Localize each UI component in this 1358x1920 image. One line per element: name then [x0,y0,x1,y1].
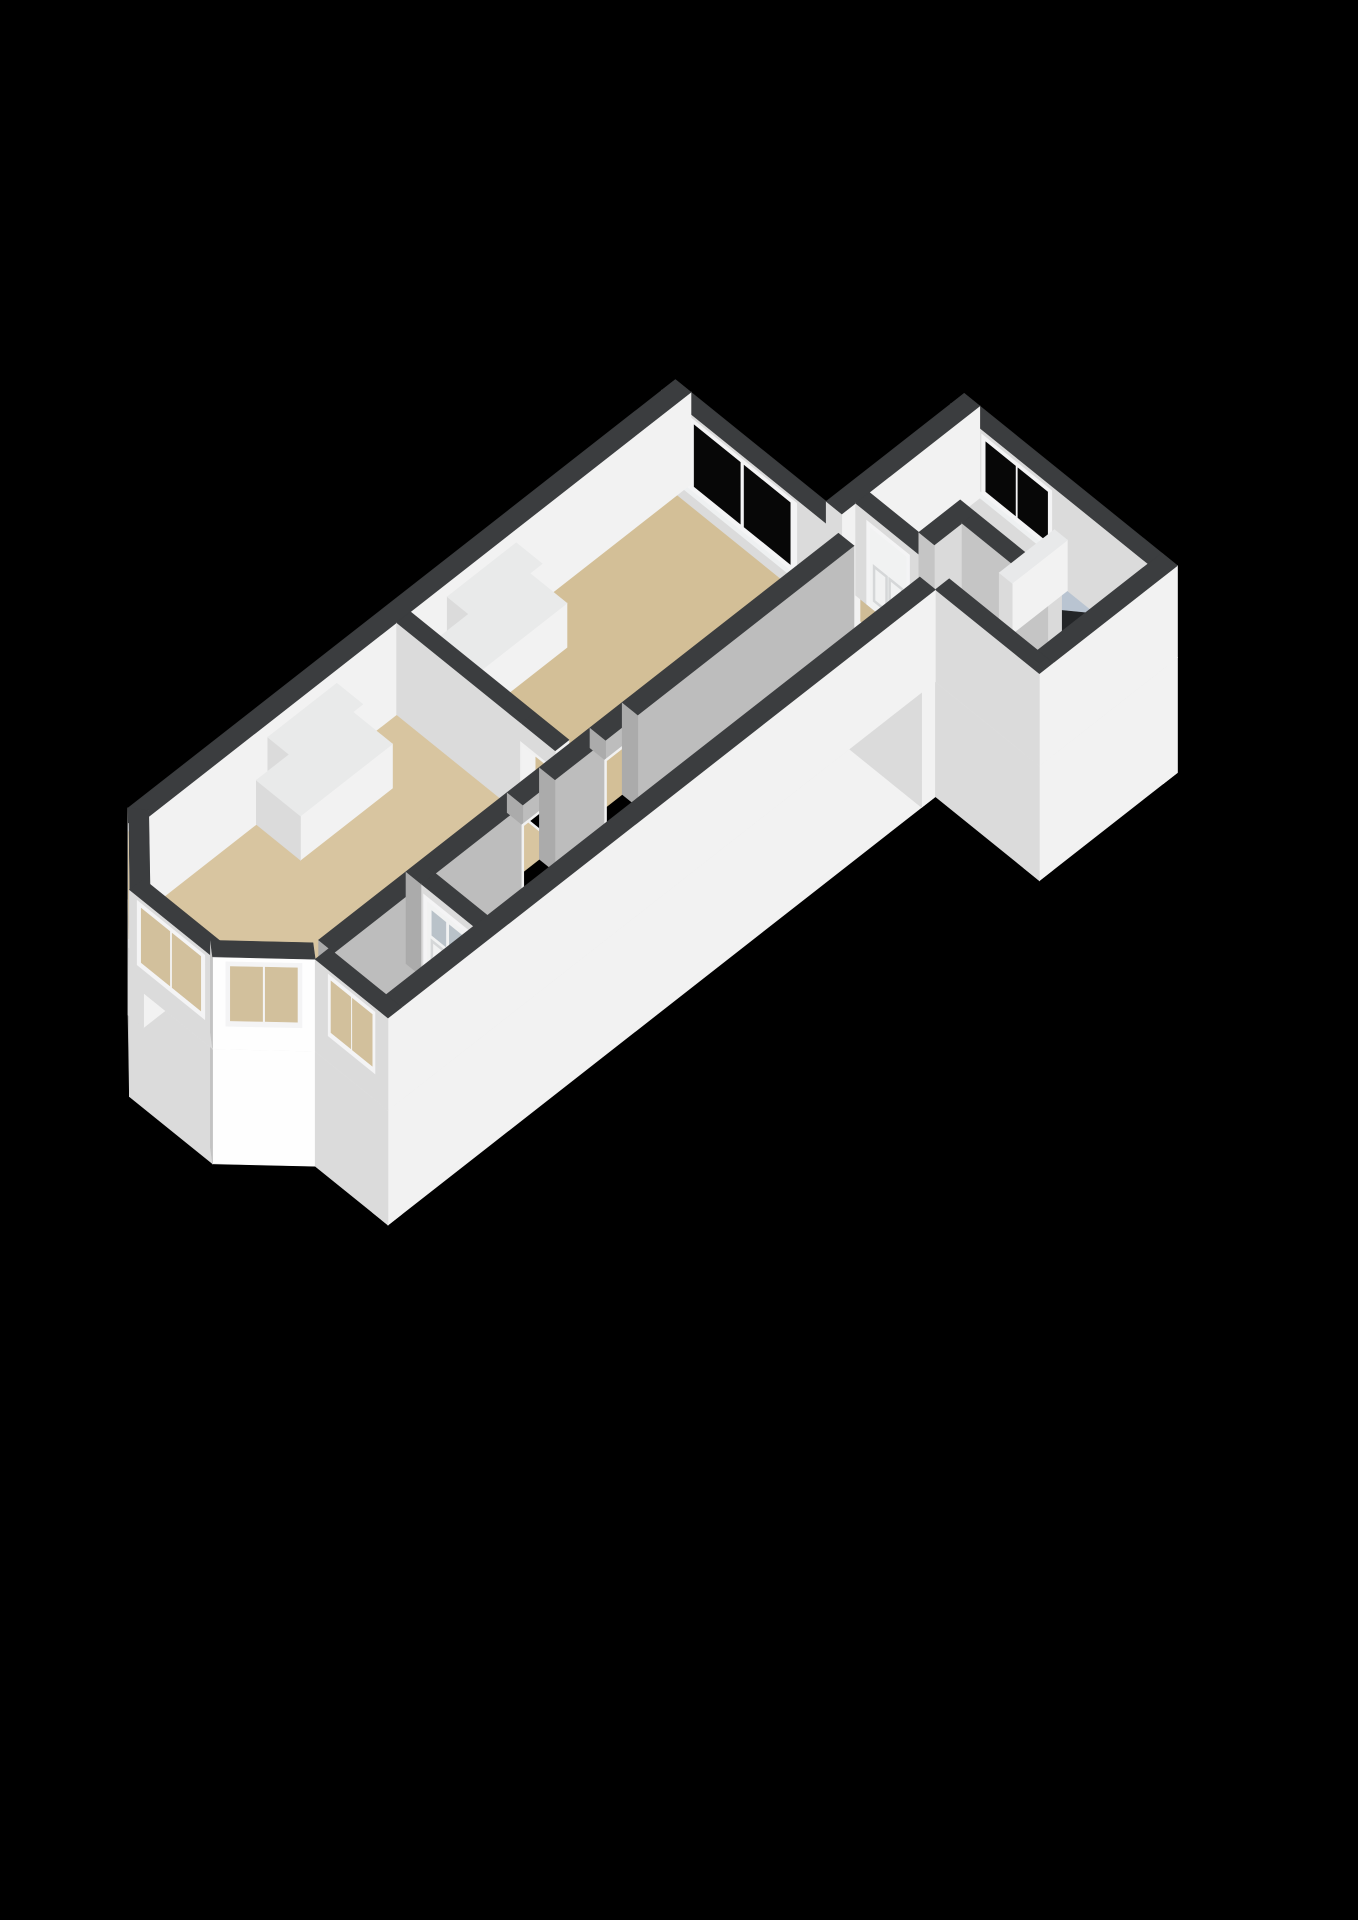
floorplan-svg [0,0,1358,1920]
floorplan-viewport [0,0,1358,1920]
skirt-bay-right [210,1032,315,1166]
window-bay-right [226,962,302,1028]
